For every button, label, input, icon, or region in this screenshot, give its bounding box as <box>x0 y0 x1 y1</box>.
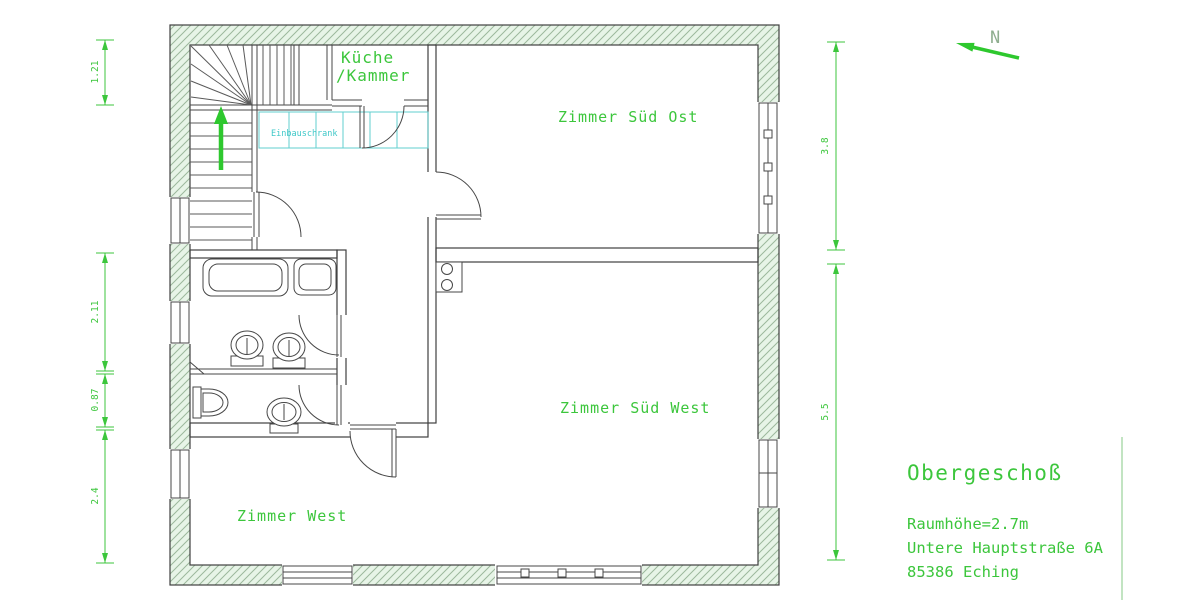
floor-plan-page: Einbauschrank <box>0 0 1200 600</box>
window-zimmer-west-west <box>168 449 191 499</box>
einbauschrank-label: Einbauschrank <box>271 129 338 139</box>
floor-plan-drawing: Einbauschrank <box>0 0 1200 600</box>
title-block: Obergeschoß Raumhöhe=2.7m Untere Hauptst… <box>907 437 1122 600</box>
address-city: 85386 Eching <box>907 563 1019 581</box>
dim-0-87: 0.87 <box>90 389 101 412</box>
north-label: N <box>990 28 1000 48</box>
address-street: Untere Hauptstraße 6A <box>907 539 1104 557</box>
kueche-label-line2: /Kammer <box>336 66 410 85</box>
window-sued-west-south <box>495 563 642 587</box>
zimmer-west-label: Zimmer West <box>237 507 347 525</box>
bathtub <box>203 259 288 296</box>
window-bath-west <box>168 301 191 344</box>
door-zimmer-sued-ost <box>436 172 481 219</box>
bath-sink-left <box>231 331 263 366</box>
room-height-text: Raumhöhe=2.7m <box>907 515 1028 533</box>
interior-walls <box>190 45 758 438</box>
floor-title: Obergeschoß <box>907 461 1063 485</box>
staircase <box>190 45 291 240</box>
door-bath <box>299 315 341 357</box>
dimension-right-2: 5.5 <box>820 264 845 560</box>
dim-2-11: 2.11 <box>90 300 101 323</box>
toilet <box>193 387 228 418</box>
dimension-left-4: 2.4 <box>90 430 114 563</box>
door-wc <box>299 385 341 425</box>
stair-direction-arrow-icon <box>214 106 228 170</box>
door-stairs-hall <box>254 192 301 237</box>
window-stairs-west <box>168 197 191 244</box>
bath-sink-right <box>273 333 305 368</box>
dimension-right-1: 3.8 <box>820 42 845 250</box>
zimmer-sued-west-label: Zimmer Süd West <box>560 399 710 417</box>
window-sued-west-east <box>756 439 780 508</box>
window-zimmer-west-south <box>282 563 353 587</box>
dimension-left-2: 2.11 <box>90 253 114 371</box>
kueche-label-line1: Küche <box>341 48 394 67</box>
north-arrow-icon: N <box>956 28 1019 58</box>
window-sued-ost-east <box>756 102 780 234</box>
dim-3-8: 3.8 <box>820 137 831 154</box>
shower-tray <box>294 259 336 295</box>
dim-5-5: 5.5 <box>820 403 831 420</box>
dim-2-4: 2.4 <box>90 487 101 504</box>
dimension-left-3: 0.87 <box>90 374 114 427</box>
dimension-left-1: 1.21 <box>90 40 114 105</box>
dim-1-21: 1.21 <box>90 60 101 83</box>
zimmer-sued-ost-label: Zimmer Süd Ost <box>558 108 698 126</box>
chimney <box>436 262 462 292</box>
wc-sink <box>267 398 301 433</box>
